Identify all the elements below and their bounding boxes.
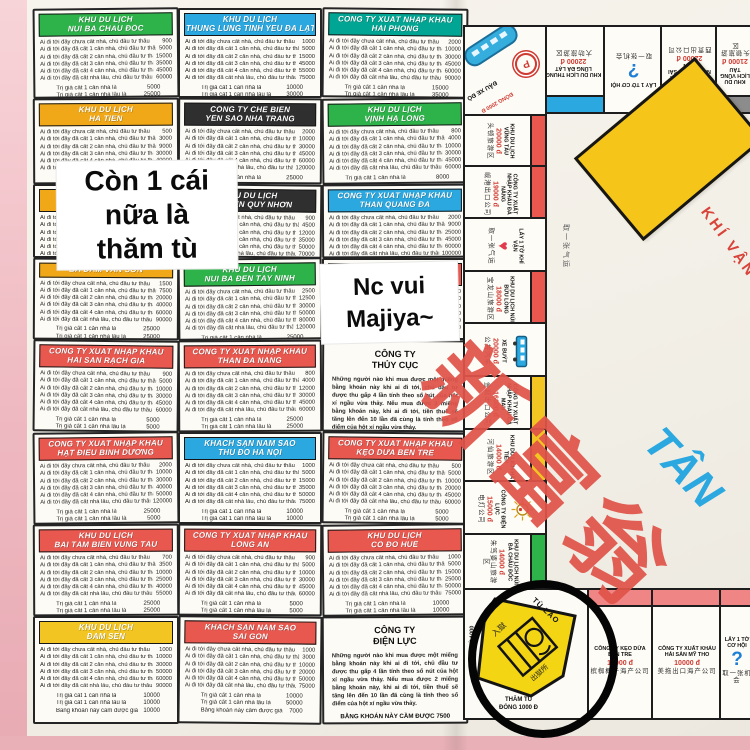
card-title-line: SÀI GÒN bbox=[186, 632, 314, 642]
square-chinese-name: 美拖出口海产公司 bbox=[657, 668, 716, 675]
line-value: 3000 bbox=[159, 136, 172, 143]
line-value: 500 bbox=[162, 129, 172, 136]
line-value: 45000 bbox=[299, 584, 315, 591]
card-title-line: NÚI BÀ CHÂU ĐỐC bbox=[41, 24, 171, 34]
card-fees: Trị giá cất 1 căn nhà là25000Trị giá cất… bbox=[40, 506, 172, 525]
line-label: Trị giá cất 1 căn nhà lầu là bbox=[201, 608, 271, 616]
line-label: Ai đi tới đây đã cất nhà lầu, chủ đầu tư… bbox=[185, 407, 296, 415]
line-value: 800 bbox=[305, 371, 315, 378]
line-label: Ai đi tới đây đã cất nhà lầu, chủ đầu tư… bbox=[329, 165, 441, 173]
property-card: CÔNG TY XUẤT NHẬP KHẨUHẢI PHÒNGAi đi tới… bbox=[322, 7, 469, 99]
line-value: 50000 bbox=[286, 701, 303, 709]
card-title-line: ĐIỆN LỰC bbox=[324, 636, 466, 648]
board-square: CÔNG TY XUẤT NHẬP KHẨU ĐÀ NẴNG19000 đ岘港出… bbox=[463, 165, 547, 222]
caption-line: Nc vui bbox=[353, 270, 426, 303]
line-value: 1000 bbox=[302, 39, 315, 46]
square-price: 14000 đ bbox=[498, 549, 505, 575]
line-value: 5000 bbox=[302, 563, 315, 570]
line-label: Ai đi tới đây đã cất nhà lầu, chủ đầu tư… bbox=[185, 75, 296, 82]
line-value: 60000 bbox=[299, 407, 315, 414]
line-value: 40000 bbox=[156, 584, 172, 591]
line-label: Ai đi tới đây đã cất 4 căn nhà, chủ đầu … bbox=[185, 492, 296, 499]
line-value: 5000 bbox=[147, 84, 160, 92]
line-value: 20000 bbox=[156, 295, 172, 302]
board-square: CÔNG TY XUẤT KHẨU HẢI SẢN MỸ THO10000 đ美… bbox=[651, 588, 723, 720]
card-fees: Trị giá cất 1 căn nhà là10000Trị giá cất… bbox=[40, 691, 172, 716]
card-title-line: THAN QUẢNG ĐÀ bbox=[330, 200, 460, 209]
card-body: Ai đi tới đây chưa cất nhà, chủ đầu tư t… bbox=[180, 288, 321, 341]
card-rent-line: Ai đi tới đây đã cất 2 căn nhà, chủ đầu … bbox=[185, 478, 315, 485]
card-title-line: ĐẦM SEN bbox=[41, 633, 171, 642]
line-label: Ai đi tới đây đã cất nhà lầu, chủ đầu tư… bbox=[185, 683, 296, 691]
card-rent-line: Ai đi tới đây chưa cất nhà, chủ đầu tư t… bbox=[185, 39, 315, 46]
line-label: Bằng khoán này cầm được giá bbox=[56, 708, 138, 716]
square-chinese-name: 头顿旅游区 bbox=[718, 42, 750, 56]
card-footer: BẰNG KHOÁN NÀY CẦM ĐƯỢC 7500 bbox=[324, 713, 466, 721]
card-fees: Trị giá cất 1 căn nhà là5000Trị giá cất … bbox=[185, 598, 315, 616]
line-label: Ai đi tới đây đã cất nhà lầu, chủ đầu tư… bbox=[185, 325, 293, 333]
square-name: KHU DU LỊCH NÚI BỬU LONG bbox=[502, 275, 514, 322]
question-mark-icon: ? bbox=[628, 61, 640, 80]
card-title: CÔNG TYĐIỆN LỰC bbox=[324, 625, 466, 648]
board-square-content: CÔNG TY XUẤT KHẨU HẢI SẢN MỸ THO10000 đ美… bbox=[654, 605, 720, 716]
card-body: Ai đi tới đây chưa cất nhà, chủ đầu tư t… bbox=[180, 462, 320, 524]
card-rent-line: Ai đi tới đây đã cất nhà lầu, chủ đầu tư… bbox=[185, 75, 315, 82]
line-value: 10000 bbox=[286, 509, 303, 517]
line-value: 25000 bbox=[144, 608, 161, 616]
card-title: CÔNG TY CHẾ BIẾNYẾN SÀO NHA TRANG bbox=[184, 103, 316, 127]
property-card: KHU DU LỊCHNÚI BÀ CHÂU ĐỐCAi đi tới đây … bbox=[33, 7, 180, 99]
board-square: LẤY 1 TỜ KHÍ VẬN♥取一张气运 bbox=[463, 217, 547, 274]
caption-line: Còn 1 cái bbox=[84, 163, 209, 198]
line-value: 10000 bbox=[286, 516, 303, 524]
card-title-line: BÃI TẮM BIỂN VŨNG TÀU bbox=[41, 540, 171, 549]
line-value: 25000 bbox=[143, 326, 160, 334]
card-title: KHÁCH SẠN NĂM SAOSÀI GÒN bbox=[184, 620, 316, 645]
card-rent-line: Ai đi tới đây chưa cất nhà, chủ đầu tư t… bbox=[40, 647, 172, 654]
line-value: 60000 bbox=[156, 408, 172, 415]
line-value: 55000 bbox=[299, 68, 315, 75]
line-label: Ai đi tới đây đã cất nhà lầu, chủ đầu tư… bbox=[185, 591, 296, 599]
card-rent-line: Ai đi tới đây đã cất 1 căn nhà, chủ đầu … bbox=[185, 470, 315, 477]
card-paragraph: Những người nào khi mua được một miếng b… bbox=[324, 647, 466, 709]
line-label: Trị giá cất 1 căn nhà là bbox=[201, 509, 261, 517]
line-value: 5000 bbox=[289, 601, 302, 609]
line-label: Ai đi tới đây đã cất 4 căn nhà, chủ đầu … bbox=[185, 68, 296, 75]
line-label: Trị giá cất 1 căn nhà lầu là bbox=[56, 608, 126, 616]
card-body: Ai đi tới đây chưa cất nhà, chủ đầu tư t… bbox=[34, 370, 177, 433]
board-square-content: KHU DU LỊCH VŨNG TÀU20000 đ头顿旅游区 bbox=[468, 117, 532, 164]
line-value: 15000 bbox=[432, 85, 449, 93]
card-rent-line: Ai đi tới đây đã cất nhà lầu, chủ đầu tư… bbox=[329, 165, 461, 174]
line-value: 10000 bbox=[143, 708, 160, 716]
card-title: CÔNG TY XUẤT NHẬP KHẨUHẢI PHÒNG bbox=[328, 12, 462, 37]
property-card: BÀ ĐẦM VÂN SƠNAi đi tới đây chưa cất nhà… bbox=[33, 258, 179, 341]
card-body: Ai đi tới đây chưa cất nhà, chủ đầu tư t… bbox=[35, 38, 178, 99]
line-label: Ai đi tới đây đã cất 2 căn nhà, chủ đầu … bbox=[185, 54, 296, 61]
card-title: KHU DU LỊCHĐẦM SEN bbox=[39, 621, 173, 644]
line-value: 3000 bbox=[302, 655, 315, 662]
line-label: Trị giá cất 1 căn nhà lầu là bbox=[56, 700, 126, 708]
line-value: 10000 bbox=[156, 569, 172, 576]
square-name: KHU DU LỊCH VŨNG TÀU bbox=[502, 117, 514, 164]
property-card: CÔNG TY XUẤT NHẬP KHẨUTHAN ĐÀ NẴNGAi đi … bbox=[178, 340, 322, 433]
card-rent-line: Ai đi tới đây đã cất 4 căn nhà, chủ đầu … bbox=[185, 68, 315, 75]
card-rent-line: Ai đi tới đây đã cất nhà lầu, chủ đầu tư… bbox=[329, 75, 461, 84]
card-body: Ai đi tới đây chưa cất nhà, chủ đầu tư t… bbox=[35, 554, 177, 617]
line-label: Ai đi tới đây chưa cất nhà, chủ đầu tư t… bbox=[185, 39, 295, 46]
line-value: 30000 bbox=[156, 662, 172, 669]
square-price: 22000 đ bbox=[561, 57, 587, 64]
card-rent-line: Ai đi tới đây đã cất 2 căn nhà, chủ đầu … bbox=[185, 54, 315, 61]
line-value: 60000 bbox=[299, 158, 315, 165]
line-value: 75000 bbox=[299, 499, 315, 506]
fate-diamond-label: KHÍ VẬN bbox=[697, 204, 750, 281]
line-label: Ai đi tới đây đã cất 4 căn nhà, chủ đầu … bbox=[40, 676, 153, 683]
square-chinese-name: 岘港出口公司 bbox=[483, 171, 490, 215]
card-title-line: YẾN SÀO NHA TRANG bbox=[186, 114, 314, 123]
card-rent-line: Ai đi tới đây đã cất 1 căn nhà, chủ đầu … bbox=[185, 46, 315, 53]
card-rent-line: Ai đi tới đây đã cất nhà lầu, chủ đầu tư… bbox=[40, 499, 172, 508]
line-label: Ai đi tới đây đã cất nhà lầu, chủ đầu tư… bbox=[185, 499, 296, 506]
property-card: KHU DU LỊCHNÚI BÀ ĐEN TÂY NINHAi đi tới … bbox=[178, 257, 323, 341]
line-value: 10000 bbox=[143, 700, 160, 708]
line-value: 45000 bbox=[299, 151, 315, 158]
board-square-content: KHU DU LỊCH NÚI BÀ CHÂU ĐỐC14000 đ朱笃婆山旅游… bbox=[468, 538, 532, 585]
line-value: 60000 bbox=[299, 592, 315, 599]
utility-card: CÔNG TYĐIỆN LỰCNhững người nào khi mua đ… bbox=[322, 616, 469, 725]
card-title: CÔNG TY XUẤT NHẬP KHẨULONG AN bbox=[184, 529, 316, 553]
line-value: 120000 bbox=[296, 325, 315, 332]
card-title: CÔNG TY XUẤT NHẬP KHẨUHẢI SẢN RẠCH GIÁ bbox=[39, 344, 173, 369]
line-value: 45000 bbox=[299, 400, 315, 407]
square-price: 21000 đ bbox=[722, 57, 748, 64]
card-rent-line: Ai đi tới đây đã cất nhà lầu, chủ đầu tư… bbox=[40, 407, 172, 416]
card-rent-line: Trị giá cất 1 căn nhà là10000 bbox=[201, 85, 303, 93]
board-square-content: LẤY 1 TỜ CƠ HỘI?取一张机会 bbox=[722, 605, 750, 716]
line-value: 5000 bbox=[146, 417, 159, 425]
card-rent-line: Ai đi tới đây chưa cất nhà, chủ đầu tư t… bbox=[185, 463, 315, 470]
line-value: 30000 bbox=[299, 577, 315, 584]
card-title: CÔNG TY XUẤT NHẬP KHẨUHẠT ĐIỀU BÌNH DƯƠN… bbox=[39, 436, 173, 461]
line-value: 25000 bbox=[286, 175, 303, 183]
square-color-bar bbox=[530, 270, 547, 327]
card-rent-line: Trị giá cất 1 căn nhà lầu là10000 bbox=[201, 516, 303, 524]
line-label: Bằng khoán này cầm được giá bbox=[201, 707, 283, 715]
card-title: KHU DU LỊCHVỊNH HẠ LONG bbox=[328, 102, 462, 127]
photo-of-monopoly-board: KHU DU LỊCHNÚI BÀ CHÂU ĐỐCAi đi tới đây … bbox=[0, 0, 750, 750]
board-square-content: KHU DU LỊCH VŨNG TÀU21000 đ头顿旅游区 bbox=[718, 29, 750, 97]
parking-label: ĐẬU XE ĐÒ bbox=[466, 79, 498, 101]
card-title-line: CÔNG TY bbox=[324, 625, 466, 637]
line-label: Trị giá cất 1 căn nhà lầu là bbox=[345, 516, 415, 524]
square-price: 18000 đ bbox=[494, 286, 501, 312]
card-rent-line: Ai đi tới đây đã cất nhà lầu, chủ đầu tư… bbox=[40, 683, 172, 690]
card-fees: Trị giá cất 1 căn nhà là25000Trị giá cất… bbox=[40, 598, 172, 616]
property-card: KHU DU LỊCHBÃI TẮM BIỂN VŨNG TÀUAi đi tớ… bbox=[33, 524, 179, 617]
fate-diamond-chinese-label: 取一张气运 bbox=[561, 224, 571, 269]
square-chinese-name: 西贡出口公司 bbox=[667, 46, 711, 53]
line-value: 5000 bbox=[147, 516, 160, 524]
card-rent-line: Ai đi tới đây đã cất 3 căn nhà, chủ đầu … bbox=[185, 485, 315, 492]
card-body: Ai đi tới đây chưa cất nhà, chủ đầu tư t… bbox=[180, 554, 320, 616]
line-value: 25000 bbox=[287, 424, 304, 432]
line-value: 7000 bbox=[289, 708, 302, 716]
line-label: Trị giá cất 1 căn nhà lầu là bbox=[345, 608, 415, 616]
square-chinese-name: 头顿旅游区 bbox=[486, 122, 493, 159]
caption-line: nữa là bbox=[105, 198, 189, 233]
property-card: KHU DU LỊCHCỐ ĐÔ HUẾAi đi tới đây chưa c… bbox=[322, 523, 469, 617]
card-rent-line: Ai đi tới đây đã cất 3 căn nhà, chủ đầu … bbox=[185, 61, 315, 68]
card-title-line: LONG AN bbox=[186, 540, 314, 549]
line-value: 1000 bbox=[302, 463, 315, 470]
property-card: CÔNG TY XUẤT NHẬP KHẨUTHAN QUẢNG ĐÀAi đi… bbox=[322, 184, 468, 259]
property-card: KHÁCH SẠN NĂM SAOTHỦ ĐÔ HÀ NỘIAi đi tới … bbox=[178, 432, 322, 524]
line-value: 5000 bbox=[302, 46, 315, 53]
property-card: CÔNG TY XUẤT NHẬP KHẨUHẢI SẢN RẠCH GIÁAi… bbox=[33, 339, 180, 433]
card-fees: Trị giá cất 1 căn nhà là5000Trị giá cất … bbox=[328, 506, 460, 525]
card-title-line: KHU DU LỊCH bbox=[186, 16, 314, 25]
line-label: Ai đi tới đây đã cất 1 căn nhà, chủ đầu … bbox=[185, 46, 299, 53]
line-label: Ai đi tới đây đã cất 3 căn nhà, chủ đầu … bbox=[185, 61, 296, 68]
line-label: Ai đi tới đây đã cất nhà lầu, chủ đầu tư… bbox=[329, 591, 441, 599]
caption-line: thăm tù bbox=[97, 232, 198, 267]
square-color-bar bbox=[530, 165, 547, 222]
line-value: 90000 bbox=[156, 683, 172, 690]
card-body: Ai đi tới đây chưa cất nhà, chủ đầu tư t… bbox=[180, 38, 320, 98]
square-name: LẤY 1 TỜ CƠ HỘI bbox=[722, 637, 750, 649]
line-value: 60000 bbox=[156, 310, 172, 317]
card-title-line: THỦ ĐÔ HÀ NỘI bbox=[186, 449, 314, 458]
square-name: KHU DU LỊCH NÚI BÀ CHÂU ĐỐC bbox=[506, 538, 518, 585]
line-label: Ai đi tới đây đã cất 2 căn nhà, chủ đầu … bbox=[185, 478, 296, 485]
square-chinese-name: 取一张气运 bbox=[487, 227, 494, 264]
board-square: LẤY 1 TỜ CƠ HỘI?取一张机会 bbox=[719, 588, 750, 720]
card-title: KHU DU LỊCHNÚI BÀ CHÂU ĐỐC bbox=[39, 12, 173, 37]
card-title-line: KHÁCH SẠN NĂM SAO bbox=[186, 440, 314, 449]
card-title-line: KHU DU LỊCH bbox=[41, 624, 171, 633]
line-value: 10000 bbox=[286, 85, 303, 93]
line-label: Trị giá cất 1 căn nhà là bbox=[201, 85, 261, 93]
card-body: Ai đi tới đây chưa cất nhà, chủ đầu tư t… bbox=[180, 370, 320, 432]
card-title-line: NÚI BÀ ĐEN TÂY NINH bbox=[186, 274, 314, 284]
card-body: Ai đi tới đây chưa cất nhà, chủ đầu tư t… bbox=[324, 554, 467, 617]
card-rent-line: Trị giá cất 1 căn nhà là10000 bbox=[201, 509, 303, 517]
board-square: KHU DU LỊCH VŨNG TÀU20000 đ头顿旅游区 bbox=[463, 112, 547, 169]
card-rent-line: Ai đi tới đây đã cất nhà lầu, chủ đầu tư… bbox=[329, 591, 461, 600]
line-value: 30000 bbox=[156, 151, 172, 158]
card-rent-line: Bằng khoán này cầm được giá7000 bbox=[201, 707, 303, 716]
card-title: KHU DU LỊCHCỐ ĐÔ HUẾ bbox=[328, 528, 462, 553]
line-value: 12000 bbox=[299, 385, 315, 392]
card-rent-line: Trị giá cất 1 căn nhà là10000 bbox=[56, 693, 160, 701]
line-value: 25000 bbox=[156, 577, 172, 584]
card-body: Ai đi tới đây chưa cất nhà, chủ đầu tư t… bbox=[324, 128, 467, 185]
line-value: 7500 bbox=[159, 288, 172, 295]
card-fees: Trị giá cất 1 căn nhà là5000Trị giá cất … bbox=[39, 414, 171, 433]
card-rent-line: Ai đi tới đây đã cất nhà lầu, chủ đầu tư… bbox=[40, 75, 172, 84]
line-value: 25000 bbox=[143, 334, 160, 341]
card-title-line: HẠT ĐIỀU BÌNH DƯƠNG bbox=[41, 448, 171, 458]
square-name: LẤY 1 TỜ KHÍ VẬN bbox=[511, 222, 523, 269]
card-title: KHU DU LỊCHHÀ TIÊN bbox=[39, 103, 173, 127]
card-fees: Trị giá cất 1 căn nhà là25000Trị giá cất… bbox=[40, 324, 172, 341]
line-label: Ai đi tới đây đã cất nhà lầu, chủ đầu tư… bbox=[40, 316, 152, 324]
line-value: 40000 bbox=[156, 303, 172, 310]
line-value: 5000 bbox=[302, 470, 315, 477]
card-body: Ai đi tới đây chưa cất nhà, chủ đầu tư t… bbox=[323, 38, 466, 99]
square-chinese-name: 朱笃婆山旅游区 bbox=[482, 538, 496, 585]
card-title: KHU DU LỊCHBÃI TẮM BIỂN VŨNG TÀU bbox=[39, 529, 173, 553]
caption-note-jail: Còn 1 cái nữa là thăm tù bbox=[57, 160, 238, 270]
card-rent-line: Ai đi tới đây đã cất nhà lầu, chủ đầu tư… bbox=[185, 407, 315, 415]
card-rent-line: Trị giá cất 1 căn nhà lầu là25000 bbox=[56, 608, 160, 616]
line-label: Trị giá cất 1 căn nhà lầu là bbox=[56, 516, 126, 524]
card-title-line: VỊNH HẠ LONG bbox=[330, 114, 460, 124]
line-value: 2000 bbox=[302, 130, 315, 137]
card-rent-line: Trị giá cất 1 căn nhà lầu là10000 bbox=[56, 700, 160, 708]
line-value: 10000 bbox=[143, 693, 160, 701]
card-fees: Trị giá cất 1 căn nhà là15000Trị giá cất… bbox=[328, 82, 460, 99]
card-fees: Trị giá cất 1 căn nhà là10000Trị giá cất… bbox=[329, 598, 461, 617]
line-value: 10000 bbox=[299, 570, 315, 577]
card-title-line: THAN ĐÀ NẴNG bbox=[186, 356, 314, 365]
line-label: Ai đi tới đây đã cất nhà lầu, chủ đầu tư… bbox=[329, 499, 441, 507]
line-value: 30000 bbox=[286, 92, 303, 98]
line-value: 4500 bbox=[302, 223, 315, 230]
card-rent-line: Trị giá cất 1 căn nhà lầu là25000 bbox=[201, 424, 303, 432]
card-title-line: CÔNG TY XUẤT NHẬP KHẨU bbox=[330, 192, 460, 201]
line-label: Ai đi tới đây đã cất 3 căn nhà, chủ đầu … bbox=[40, 669, 153, 676]
board-square-content: KHU DU LỊCH THUNG LŨNG ĐÀ LẠT22000 đ大叻旅游… bbox=[543, 29, 604, 97]
line-value: 900 bbox=[305, 216, 315, 223]
line-value: 75000 bbox=[299, 75, 315, 82]
line-label: Ai đi tới đây đã cất nhà lầu, chủ đầu tư… bbox=[40, 683, 152, 690]
card-title-line: THUNG LŨNG TÌNH YÊU ĐÀ LẠT bbox=[186, 25, 314, 34]
line-label: Ai đi tới đây đã cất nhà lầu, chủ đầu tư… bbox=[40, 591, 152, 599]
card-title-line: HẢI SẢN RẠCH GIÁ bbox=[41, 356, 171, 366]
line-label: Ai đi tới đây đã cất 1 căn nhà, chủ đầu … bbox=[185, 470, 299, 477]
card-body: Ai đi tới đây chưa cất nhà, chủ đầu tư t… bbox=[324, 214, 466, 259]
property-card: CÔNG TY XUẤT NHẬP KHẨULONG ANAi đi tới đ… bbox=[178, 524, 322, 617]
parking-fee: ĐÓNG 2000 Đ bbox=[480, 90, 514, 113]
line-label: Ai đi tới đây đã cất nhà lầu, chủ đầu tư… bbox=[40, 75, 152, 83]
square-color-bar bbox=[540, 95, 607, 114]
board-corner-parking: P ĐẬU XE ĐÒ ĐÓNG 2000 Đ bbox=[463, 25, 547, 116]
line-value: 15000 bbox=[299, 54, 315, 61]
line-value: 30000 bbox=[299, 144, 315, 151]
card-rent-line: Ai đi tới đây đã cất nhà lầu, chủ đầu tư… bbox=[185, 325, 315, 334]
line-value: 3500 bbox=[159, 562, 172, 569]
line-label: Ai đi tới đây đã cất 1 căn nhà, chủ đầu … bbox=[40, 654, 153, 661]
line-value: 60000 bbox=[156, 75, 172, 82]
square-name: KHU DU LỊCH VŨNG TÀU bbox=[718, 65, 750, 83]
line-label: Trị giá cất 1 căn nhà lầu là bbox=[201, 516, 271, 524]
line-label: Trị giá cất 1 căn nhà lầu là bbox=[56, 424, 126, 432]
card-rent-line: Ai đi tới đây đã cất 1 căn nhà, chủ đầu … bbox=[40, 654, 172, 661]
square-chinese-name: 取一张机会 bbox=[615, 52, 652, 59]
card-title-line: CỐ ĐÔ HUẾ bbox=[330, 540, 460, 550]
line-value: 90000 bbox=[156, 317, 172, 324]
property-card: KHU DU LỊCHVỊNH HẠ LONGAi đi tới đây chư… bbox=[322, 97, 469, 185]
line-label: Ai đi tới đây đã cất nhà lầu, chủ đầu tư… bbox=[40, 407, 152, 415]
line-value: 15000 bbox=[299, 478, 315, 485]
caption-line: Majiya~ bbox=[346, 301, 434, 334]
card-fees: Trị giá cất 1 căn nhà là10000Trị giá cất… bbox=[185, 83, 315, 98]
card-title-line: HÀ TIÊN bbox=[41, 114, 171, 123]
board-square-content: CÔNG TY XUẤT NHẬP KHẨU ĐÀ NẴNG19000 đ岘港出… bbox=[468, 170, 532, 217]
board-square: KHU DU LỊCH NÚI BỬU LONG18000 đ宝龙山旅游区 bbox=[463, 270, 547, 327]
line-label: Ai đi tới đây đã cất nhà lầu, chủ đầu tư… bbox=[329, 75, 441, 83]
line-label: Trị giá cất 1 căn nhà lầu là bbox=[201, 424, 271, 432]
card-title: CÔNG TY XUẤT NHẬP KHẨUTHAN ĐÀ NẴNG bbox=[184, 345, 316, 369]
board-square-content: LẤY 1 TỜ KHÍ VẬN♥取一张气运 bbox=[468, 222, 542, 269]
line-value: 25000 bbox=[143, 600, 160, 608]
line-label: Ai đi tới đây đã cất 2 căn nhà, chủ đầu … bbox=[40, 662, 153, 669]
line-label: Trị giá cất 1 căn nhà là bbox=[56, 693, 116, 701]
line-value: 10000 bbox=[286, 693, 303, 701]
line-value: 50000 bbox=[156, 669, 172, 676]
line-value: 120000 bbox=[295, 166, 314, 173]
line-value: 700 bbox=[162, 555, 172, 562]
board-square: KHU DU LỊCH THUNG LŨNG ĐÀ LẠT22000 đ大叻旅游… bbox=[540, 25, 607, 114]
line-value: 900 bbox=[305, 556, 315, 563]
card-title: KHÁCH SẠN NĂM SAOTHỦ ĐÔ HÀ NỘI bbox=[184, 437, 316, 460]
line-value: 75000 bbox=[299, 684, 315, 691]
square-price: 19000 đ bbox=[491, 181, 498, 207]
card-body: Ai đi tới đây chưa cất nhà, chủ đầu tư t… bbox=[35, 646, 177, 715]
card-title-line: HẢI PHÒNG bbox=[330, 24, 460, 34]
card-fees: Trị giá cất 1 căn nhà là10000Trị giá cất… bbox=[185, 507, 315, 524]
card-rent-line: Ai đi tới đây đã cất 2 căn nhà, chủ đầu … bbox=[40, 662, 172, 669]
card-title-line: CÔNG TY XUẤT NHẬP KHẨU bbox=[186, 532, 314, 541]
card-rent-line: Ai đi tới đây đã cất 4 căn nhà, chủ đầu … bbox=[185, 492, 315, 499]
card-title: CÔNG TY XUẤT NHẬP KHẨUTHAN QUẢNG ĐÀ bbox=[328, 189, 462, 213]
table-cloth-left-edge bbox=[0, 0, 27, 750]
square-name: CÔNG TY XUẤT NHẬP KHẨU ĐÀ NẴNG bbox=[499, 170, 517, 217]
card-rent-line: Ai đi tới đây đã cất 3 căn nhà, chủ đầu … bbox=[40, 669, 172, 676]
line-value: 35000 bbox=[299, 485, 315, 492]
card-body: Ai đi tới đây chưa cất nhà, chủ đầu tư t… bbox=[35, 279, 177, 340]
line-label: Ai đi tới đây chưa cất nhà, chủ đầu tư t… bbox=[40, 647, 150, 654]
line-value: 50000 bbox=[299, 492, 315, 499]
property-card: KHU DU LỊCHĐẦM SENAi đi tới đây chưa cất… bbox=[33, 616, 179, 724]
card-body: Ai đi tới đây chưa cất nhà, chủ đầu tư t… bbox=[180, 646, 321, 716]
line-value: 5000 bbox=[289, 608, 302, 616]
card-rent-line: Bằng khoán này cầm được giá10000 bbox=[56, 708, 160, 716]
square-name: KHU DU LỊCH THUNG LŨNG ĐÀ LẠT bbox=[543, 65, 604, 77]
line-value: 55000 bbox=[156, 591, 172, 598]
property-card: KHÁCH SẠN NĂM SAOSÀI GÒNAi đi tới đây ch… bbox=[177, 615, 322, 725]
line-value: 8000 bbox=[436, 174, 449, 182]
line-value: 9000 bbox=[159, 143, 172, 150]
square-name: CÔNG TY XUẤT KHẨU HẢI SẢN MỸ THO bbox=[654, 646, 720, 658]
card-rent-line: Ai đi tới đây đã cất nhà lầu, chủ đầu tư… bbox=[185, 499, 315, 506]
heart-icon: ♥ bbox=[495, 241, 510, 250]
card-fees: Trị giá cất 1 căn nhà là10000Trị giá cất… bbox=[185, 690, 315, 716]
line-value: 1000 bbox=[302, 648, 315, 655]
line-value: 10000 bbox=[433, 608, 450, 616]
highlight-circle bbox=[468, 580, 618, 738]
card-rent-line: Ai đi tới đây đã cất nhà lầu, chủ đầu tư… bbox=[185, 591, 315, 599]
line-label: Ai đi tới đây chưa cất nhà, chủ đầu tư t… bbox=[185, 463, 295, 470]
line-label: Ai đi tới đây đã cất 3 căn nhà, chủ đầu … bbox=[185, 485, 296, 492]
card-rent-line: Ai đi tới đây đã cất nhà lầu, chủ đầu tư… bbox=[40, 591, 172, 599]
card-rent-line: Ai đi tới đây đã cất nhà lầu, chủ đầu tư… bbox=[185, 683, 315, 692]
parking-p-icon: P bbox=[512, 50, 540, 78]
card-title-line: CÔNG TY XUẤT NHẬP KHẨU bbox=[186, 348, 314, 357]
square-price: 10000 đ bbox=[674, 660, 700, 667]
